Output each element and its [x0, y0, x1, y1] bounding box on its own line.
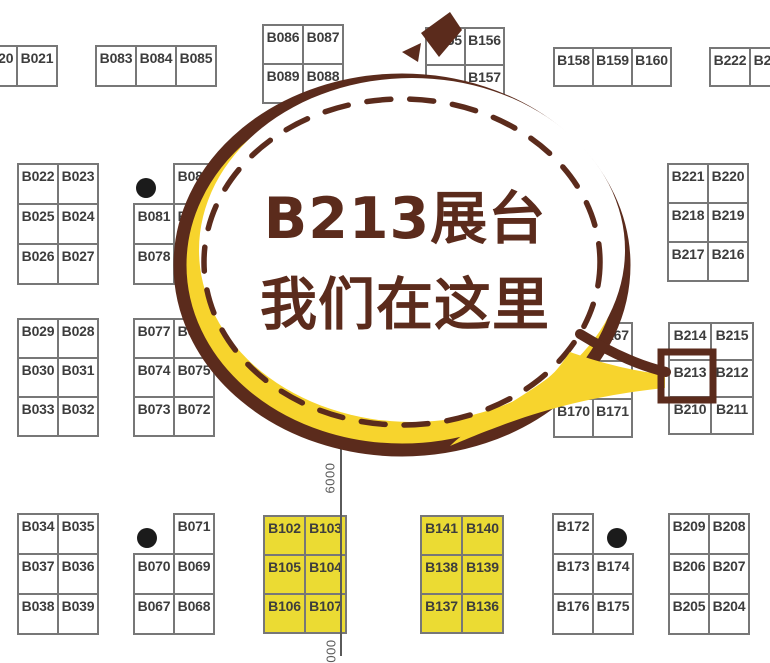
booth-B158: B158 — [553, 47, 594, 87]
booth-B074: B074 — [133, 357, 175, 398]
booth-B035: B035 — [57, 513, 99, 555]
dimension-line — [340, 443, 342, 656]
booth-B140: B140 — [461, 515, 504, 556]
booth-B024: B024 — [57, 203, 99, 245]
booth-B073: B073 — [133, 396, 175, 437]
booth-cell-unlabeled — [425, 64, 466, 103]
booth-B021: B021 — [16, 45, 58, 87]
booth-B069: B069 — [173, 553, 215, 595]
booth-B176: B176 — [552, 593, 594, 635]
booth-B156: B156 — [464, 27, 505, 66]
booth-B220: B220 — [707, 163, 749, 204]
booth-B039: B039 — [57, 593, 99, 635]
booth-B217: B217 — [667, 241, 709, 282]
booth-B138: B138 — [420, 554, 463, 595]
booth-B032: B032 — [57, 396, 99, 437]
pillar-dot — [136, 178, 156, 198]
booth-B023: B023 — [57, 163, 99, 205]
booth-B078: B078 — [133, 243, 175, 285]
booth-B139: B139 — [461, 554, 504, 595]
booth-B205: B205 — [668, 593, 710, 635]
callout-text-line1: B213展台 — [170, 191, 640, 248]
booth-B216: B216 — [707, 241, 749, 282]
booth-B071: B071 — [173, 513, 215, 555]
booth-B141: B141 — [420, 515, 463, 556]
booth-B081: B081 — [133, 203, 175, 245]
booth-B210: B210 — [668, 396, 712, 435]
booth-B030: B030 — [17, 357, 59, 398]
booth-B160: B160 — [631, 47, 672, 87]
booth-B157: B157 — [464, 64, 505, 103]
booth-B212: B212 — [710, 359, 754, 398]
booth-B175: B175 — [592, 593, 634, 635]
booth-B088: B088 — [302, 63, 344, 104]
booth-B084: B084 — [135, 45, 177, 87]
booth-B159: B159 — [592, 47, 633, 87]
pillar-dot — [137, 528, 157, 548]
booth-B022: B022 — [17, 163, 59, 205]
exhibition-floor-plan: { "callout": { "line1": "B213展台", "line2… — [0, 0, 770, 656]
booth-B218: B218 — [667, 202, 709, 243]
booth-B207: B207 — [708, 553, 750, 595]
booth-B029: B029 — [17, 318, 59, 359]
booth-B083: B083 — [95, 45, 137, 87]
booth-B068: B068 — [173, 593, 215, 635]
booth-B070: B070 — [133, 553, 175, 595]
pillar-dot — [607, 528, 627, 548]
booth-B067: B067 — [133, 593, 175, 635]
booth-B222: B222 — [709, 47, 751, 87]
booth-B208: B208 — [708, 513, 750, 555]
booth-B211: B211 — [710, 396, 754, 435]
booth-B136: B136 — [461, 593, 504, 634]
booth-B209: B209 — [668, 513, 710, 555]
booth-B170: B170 — [553, 398, 594, 438]
booth-B155: B155 — [425, 27, 466, 66]
booth-B086: B086 — [262, 24, 304, 65]
booth-B028: B028 — [57, 318, 99, 359]
booth-B037: B037 — [17, 553, 59, 595]
booth-B137: B137 — [420, 593, 463, 634]
booth-B173: B173 — [552, 553, 594, 595]
booth-B034: B034 — [17, 513, 59, 555]
booth-B213: B213 — [668, 359, 712, 398]
booth-B206: B206 — [668, 553, 710, 595]
booth-B215: B215 — [710, 322, 754, 361]
booth-B026: B026 — [17, 243, 59, 285]
callout-text-line2: 我们在这里 — [170, 277, 640, 334]
booth-B089: B089 — [262, 63, 304, 104]
booth-B077: B077 — [133, 318, 175, 359]
booth-B105: B105 — [263, 554, 306, 595]
booth-B214: B214 — [668, 322, 712, 361]
booth-B072: B072 — [173, 396, 215, 437]
booth-B025: B025 — [17, 203, 59, 245]
booth-B204: B204 — [708, 593, 750, 635]
booth-B075: B075 — [173, 357, 215, 398]
booth-cell-unlabeled — [592, 360, 633, 400]
booth-B036: B036 — [57, 553, 99, 595]
booth-B031: B031 — [57, 357, 99, 398]
booth-B102: B102 — [263, 515, 306, 556]
dimension-label-bottom: 000 — [324, 639, 339, 662]
booth-B087: B087 — [302, 24, 344, 65]
booth-B038: B038 — [17, 593, 59, 635]
booth-B221: B221 — [667, 163, 709, 204]
booth-B027: B027 — [57, 243, 99, 285]
booth-B085: B085 — [175, 45, 217, 87]
booth-B223: B223 — [749, 47, 770, 87]
booth-B033: B033 — [17, 396, 59, 437]
booth-cell-unlabeled — [553, 360, 594, 400]
booth-B174: B174 — [592, 553, 634, 595]
booth-B171: B171 — [592, 398, 633, 438]
booth-B219: B219 — [707, 202, 749, 243]
booth-B172: B172 — [552, 513, 594, 555]
dimension-label-6000: 6000 — [323, 463, 338, 494]
booth-B106: B106 — [263, 593, 306, 634]
